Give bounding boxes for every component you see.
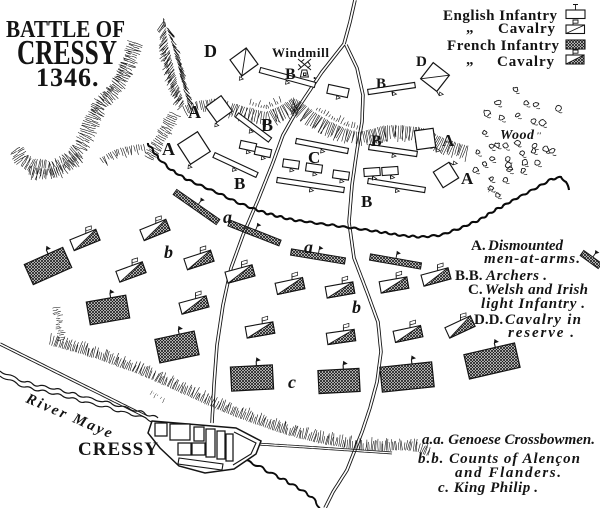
- svg-text:B: B: [261, 115, 273, 135]
- svg-text:B: B: [234, 174, 245, 193]
- svg-text:b: b: [352, 297, 361, 317]
- svg-text:Cavalry: Cavalry: [498, 21, 556, 37]
- svg-text:Wood: Wood: [500, 128, 535, 143]
- svg-text:„: „: [466, 20, 474, 36]
- svg-text:B: B: [361, 192, 372, 211]
- svg-text:A: A: [461, 169, 474, 188]
- svg-text:a.a. Genoese Crossbowmen.: a.a. Genoese Crossbowmen.: [422, 432, 595, 448]
- svg-text:„: „: [466, 52, 474, 68]
- svg-text:ʹʹ: ʹʹ: [537, 131, 542, 140]
- svg-text:b.b. Counts of Alençon: b.b. Counts of Alençon: [418, 451, 580, 467]
- svg-text:light Infantry .: light Infantry .: [481, 296, 585, 312]
- svg-text:D: D: [204, 41, 217, 61]
- svg-text:Windmill: Windmill: [272, 45, 329, 60]
- svg-text:B: B: [371, 133, 382, 150]
- svg-text:B: B: [285, 66, 296, 83]
- svg-text:B: B: [376, 76, 386, 92]
- svg-text:a: a: [304, 237, 313, 257]
- svg-text:a: a: [223, 207, 232, 227]
- svg-text:men-at-arms.: men-at-arms.: [484, 251, 580, 267]
- svg-text:D: D: [416, 54, 427, 70]
- svg-text:c. King Philip .: c. King Philip .: [438, 480, 538, 496]
- svg-text:A: A: [162, 139, 175, 159]
- svg-text:D.D.: D.D.: [474, 312, 503, 328]
- svg-text:.: .: [313, 67, 316, 82]
- svg-text:C: C: [308, 148, 320, 167]
- svg-text:Cavalry: Cavalry: [497, 54, 555, 70]
- svg-text:CRESSY: CRESSY: [78, 439, 159, 460]
- svg-text:A: A: [442, 131, 455, 150]
- svg-text:b: b: [164, 242, 173, 262]
- svg-text:1346.: 1346.: [36, 63, 100, 92]
- svg-text:c: c: [288, 372, 296, 392]
- svg-text:and Flanders.: and Flanders.: [455, 465, 561, 481]
- svg-text:A: A: [188, 102, 201, 122]
- svg-text:French Infantry: French Infantry: [447, 38, 560, 54]
